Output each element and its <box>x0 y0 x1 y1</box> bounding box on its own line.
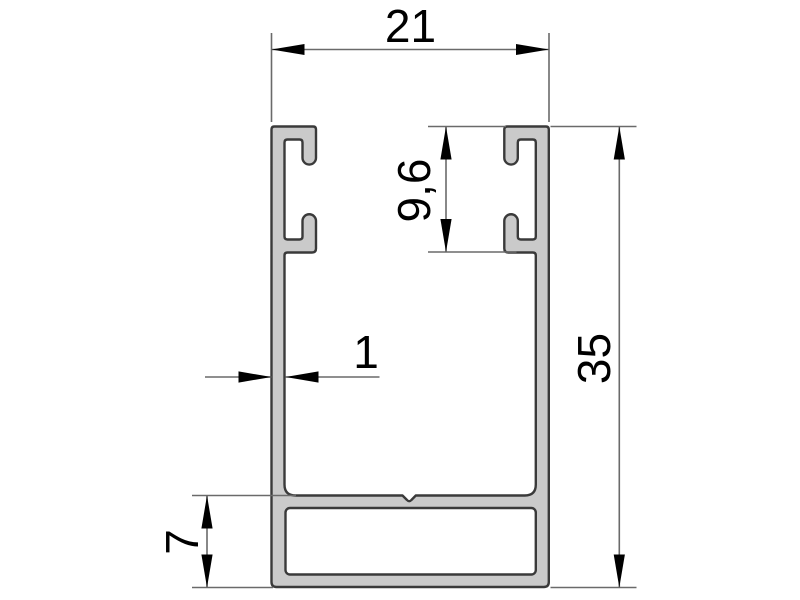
svg-text:35: 35 <box>568 333 620 384</box>
svg-text:21: 21 <box>385 0 436 52</box>
svg-text:9,6: 9,6 <box>388 159 440 223</box>
svg-text:1: 1 <box>353 326 379 378</box>
svg-text:7: 7 <box>156 529 208 555</box>
